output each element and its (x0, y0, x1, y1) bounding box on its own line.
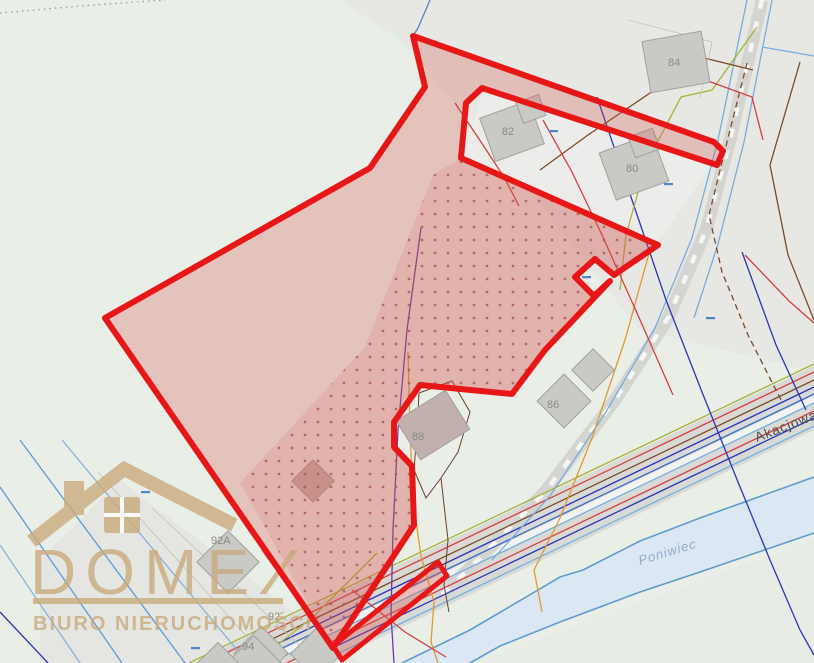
valve-marker (664, 183, 673, 185)
watermark-brand: DOMEX (30, 536, 310, 608)
watermark-divider (33, 598, 283, 604)
map-canvas[interactable]: 84 82 80 86 88 92A 92 94 DOMEX BIURO NIE… (0, 0, 814, 663)
valve-marker (549, 130, 558, 132)
building-label-86: 86 (547, 399, 559, 411)
cadastral-map: 84 82 80 86 88 92A 92 94 DOMEX BIURO NIE… (0, 0, 814, 663)
building-label-80: 80 (626, 163, 638, 175)
building-label-88: 88 (412, 431, 424, 443)
valve-marker (191, 647, 200, 649)
valve-marker (706, 317, 715, 319)
watermark-tagline: BIURO NIERUCHOMOŚCI (33, 611, 313, 635)
building-label-94: 94 (242, 641, 254, 653)
building-label-84: 84 (668, 57, 680, 69)
valve-marker (582, 276, 591, 278)
building-label-82: 82 (502, 126, 514, 138)
valve-marker (141, 491, 150, 493)
